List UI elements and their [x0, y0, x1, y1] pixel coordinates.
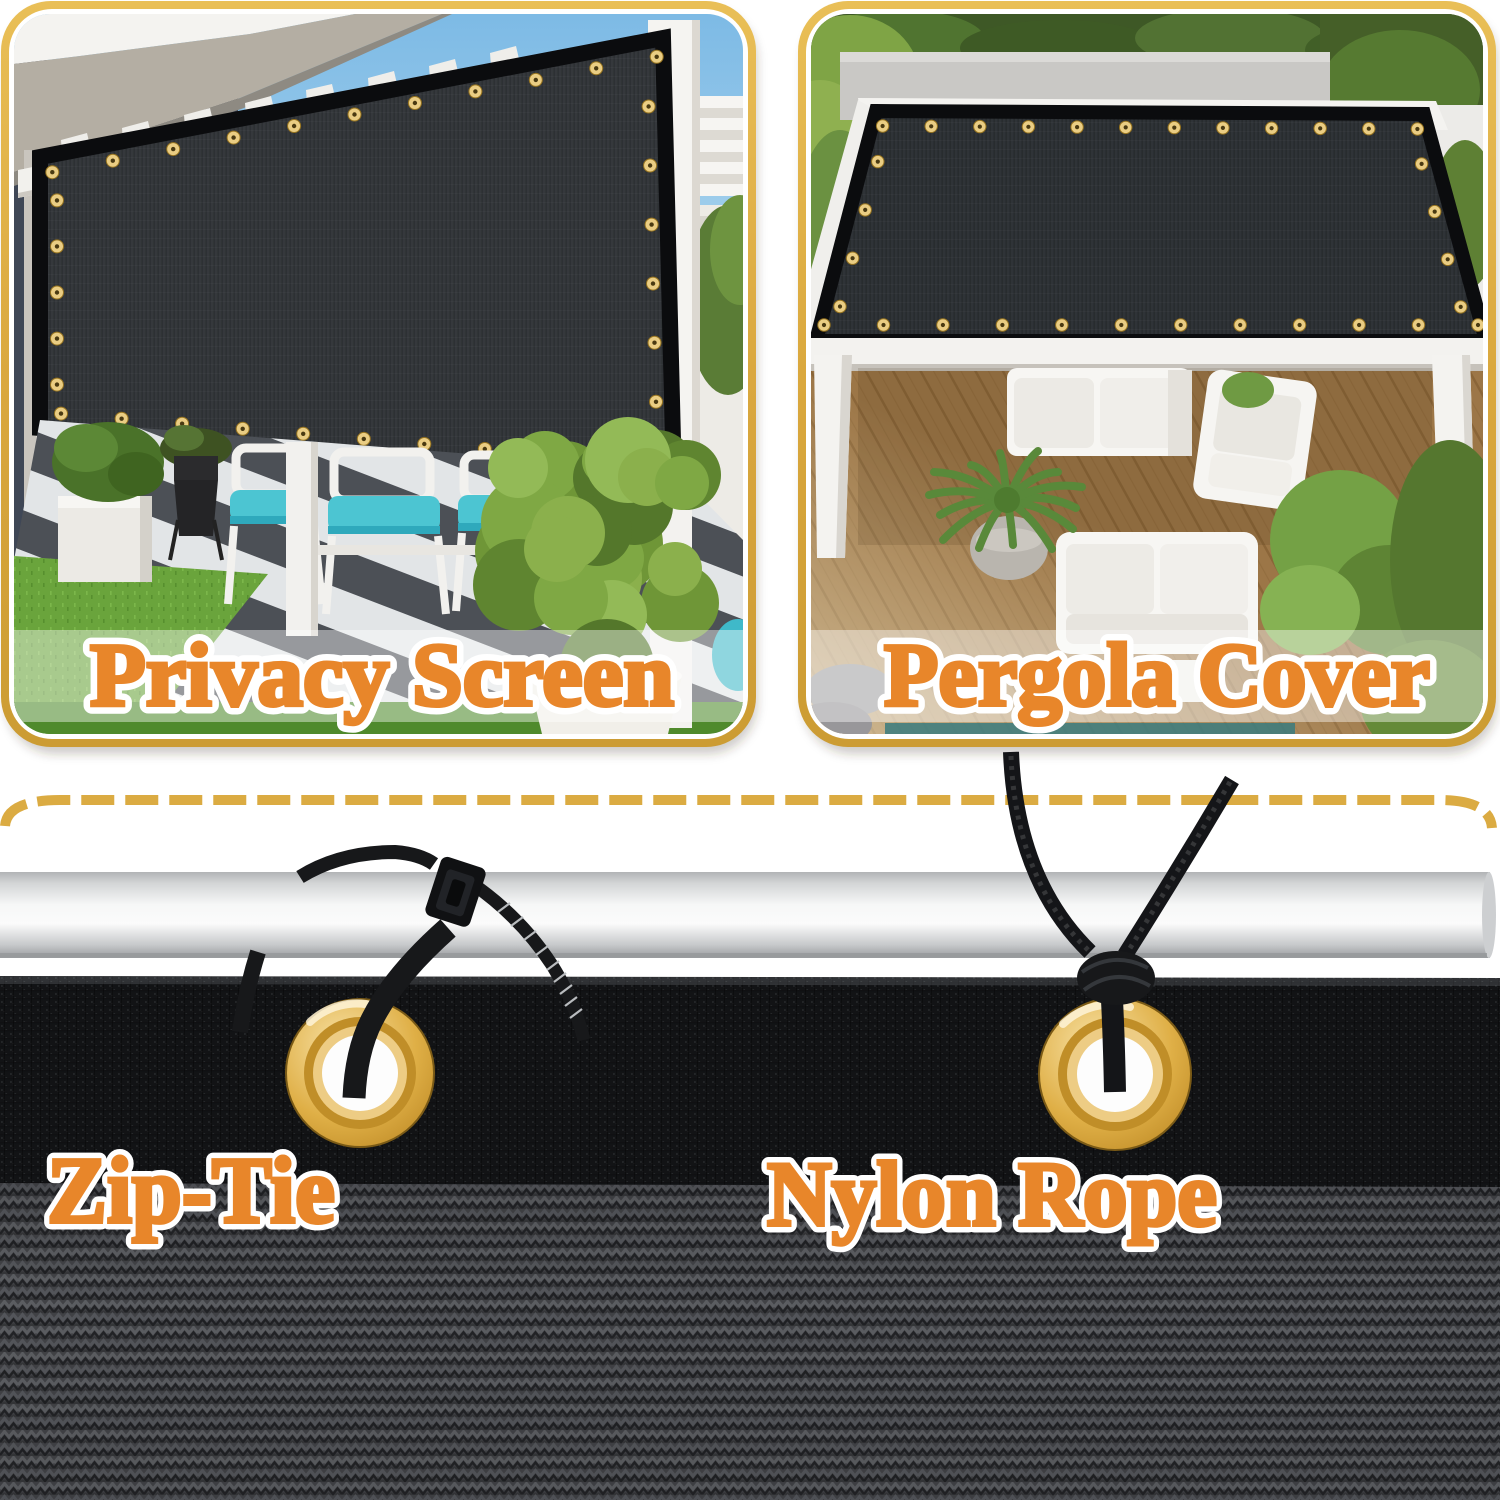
svg-text:Privacy Screen: Privacy Screen	[90, 626, 674, 725]
svg-text:Zip-Tie: Zip-Tie	[47, 1139, 335, 1243]
svg-text:Pergola Cover: Pergola Cover	[884, 626, 1430, 725]
svg-text:Nylon Rope: Nylon Rope	[767, 1143, 1217, 1245]
